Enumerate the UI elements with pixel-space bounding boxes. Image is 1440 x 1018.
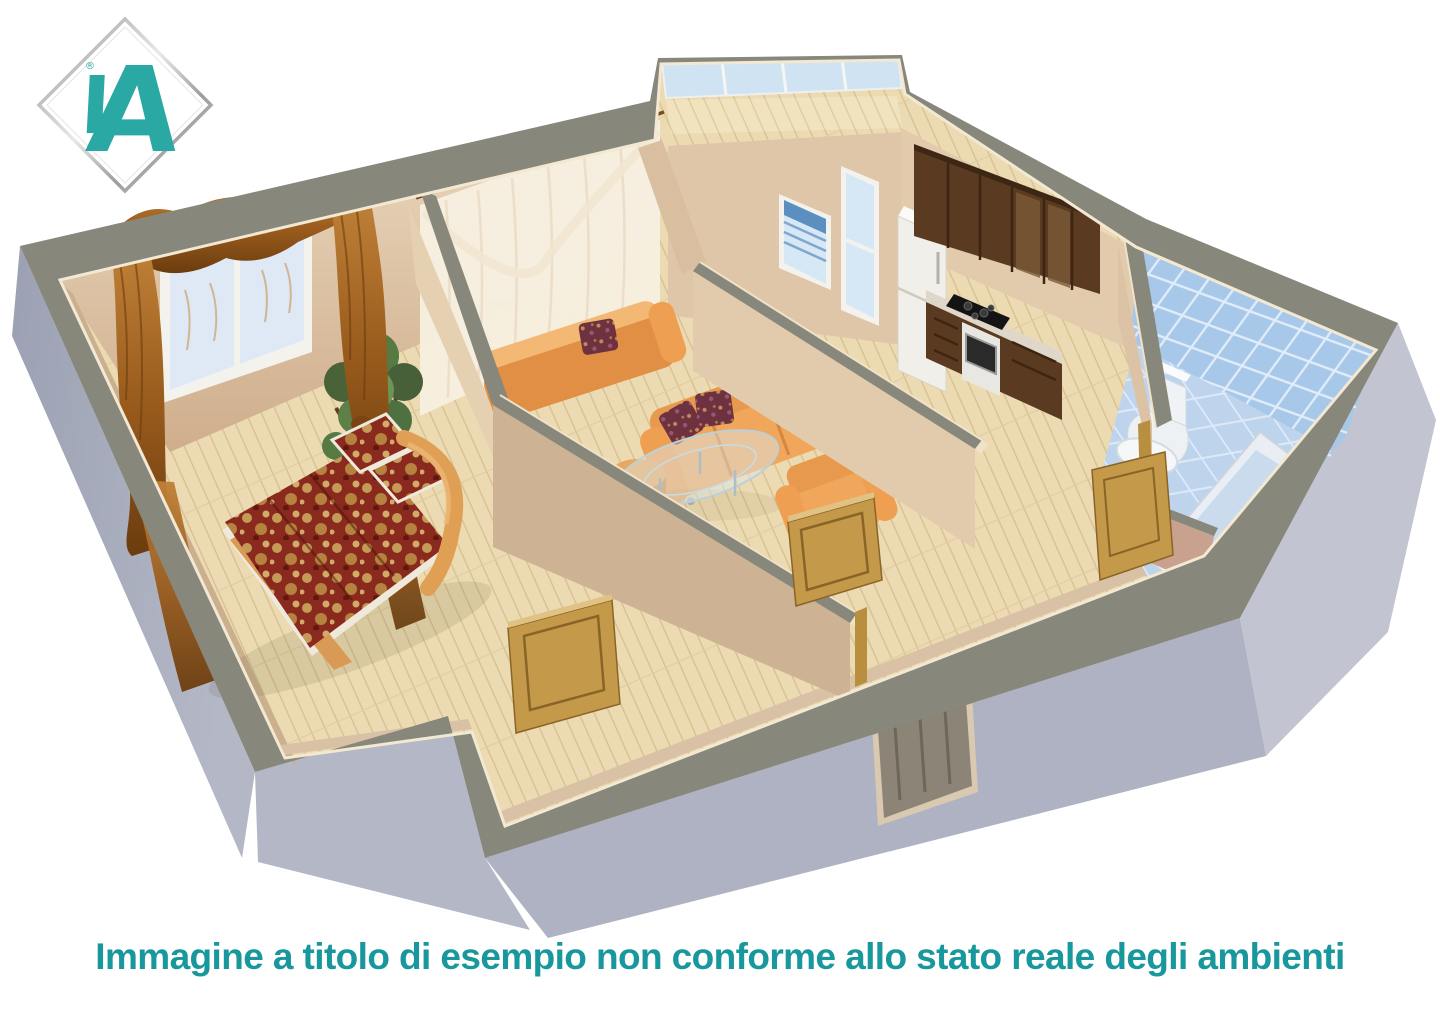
cabinet-glass-door — [1048, 204, 1070, 288]
floorplan-3d-render: A ® GROUP R.E. — [0, 0, 1440, 1018]
logo-letter: A — [82, 41, 188, 179]
door-frame-post — [855, 607, 867, 687]
logo: A ® GROUP R.E. — [39, 19, 211, 191]
sofa-pillow — [694, 389, 734, 428]
cabinet-glass-door — [1016, 192, 1040, 278]
logo-subtext: GROUP R.E. — [126, 121, 169, 129]
sofa-pillow — [578, 318, 619, 356]
screenshot-root: A ® GROUP R.E. Immagine a titolo di esem… — [0, 0, 1440, 1018]
balcony-floor — [666, 96, 902, 134]
logo-registered-mark: ® — [85, 61, 95, 72]
disclaimer-caption: Immagine a titolo di esempio non conform… — [0, 936, 1440, 978]
balcony-glass-door — [841, 166, 879, 326]
